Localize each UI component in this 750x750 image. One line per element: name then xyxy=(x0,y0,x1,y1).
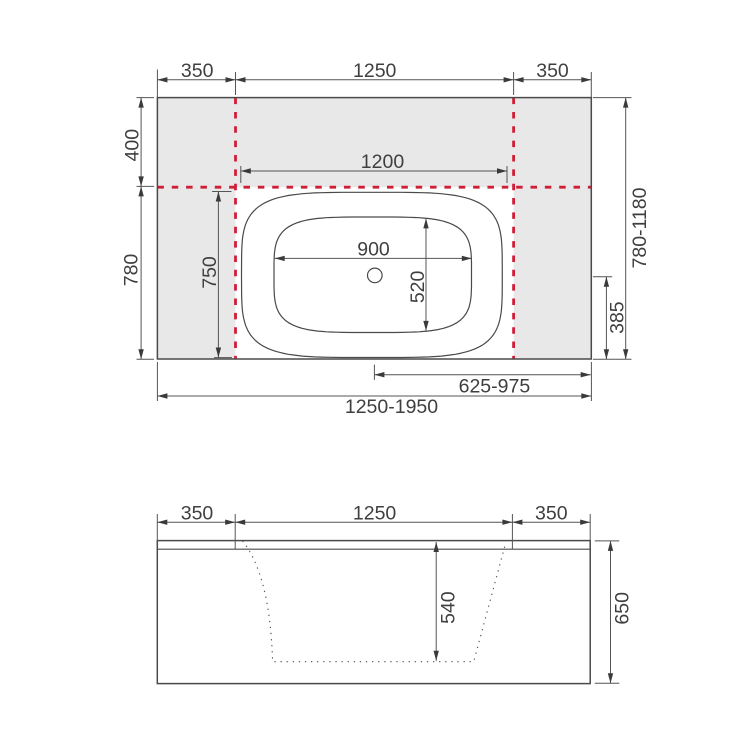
svg-text:520: 520 xyxy=(407,270,429,303)
svg-text:780: 780 xyxy=(121,254,143,287)
svg-text:750: 750 xyxy=(199,256,221,289)
svg-text:350: 350 xyxy=(536,60,569,82)
svg-text:350: 350 xyxy=(535,502,568,524)
svg-text:350: 350 xyxy=(181,60,214,82)
svg-text:385: 385 xyxy=(607,301,629,334)
svg-text:1250: 1250 xyxy=(353,60,397,82)
svg-text:350: 350 xyxy=(181,502,214,524)
svg-text:1250-1950: 1250-1950 xyxy=(345,396,438,418)
svg-text:625-975: 625-975 xyxy=(459,376,531,398)
svg-text:1250: 1250 xyxy=(353,502,397,524)
svg-text:650: 650 xyxy=(611,592,633,625)
svg-text:900: 900 xyxy=(357,239,390,261)
svg-text:400: 400 xyxy=(121,129,143,162)
svg-text:1200: 1200 xyxy=(361,151,405,173)
svg-text:780-1180: 780-1180 xyxy=(629,187,651,268)
svg-text:540: 540 xyxy=(438,591,460,624)
